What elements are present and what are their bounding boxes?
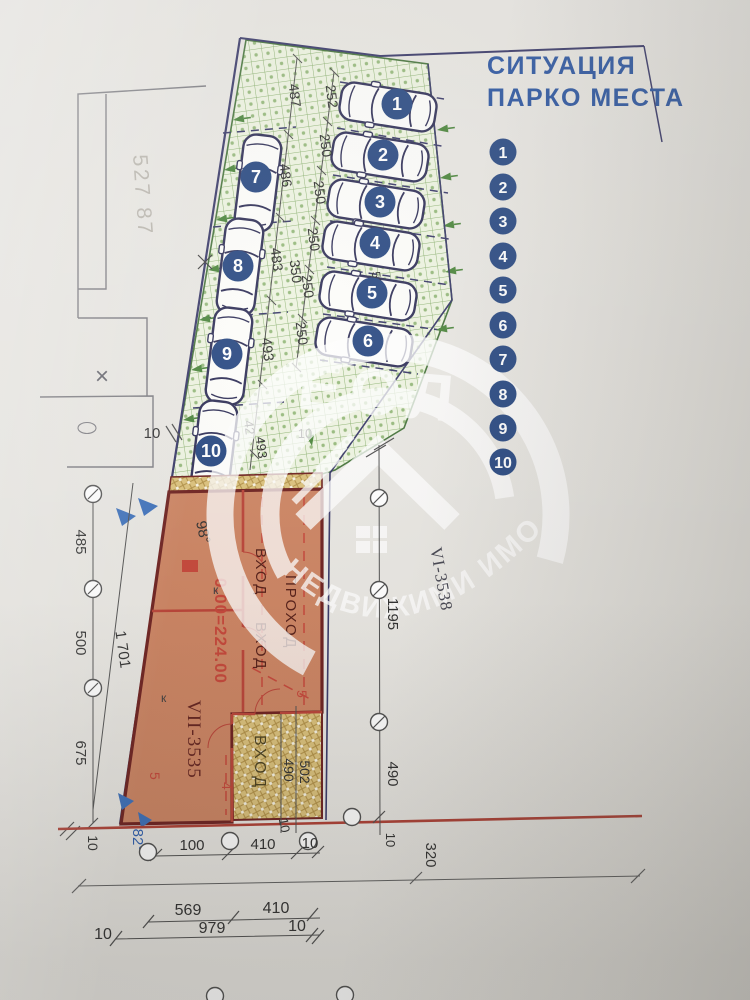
- k-upper: к: [213, 583, 219, 597]
- dim-10d: 10: [94, 926, 112, 943]
- dim-252: 252: [323, 84, 342, 109]
- dim-487: 487: [286, 83, 305, 108]
- legend-4-num: 4: [499, 249, 508, 266]
- badge-2: 2: [368, 140, 399, 171]
- badge-3: 3: [365, 187, 396, 218]
- neighbour-parcels: [40, 86, 206, 467]
- plot-number-main: VII-3535: [183, 700, 204, 779]
- legend-5-num: 5: [499, 283, 508, 300]
- legend-9-num: 9: [499, 421, 508, 438]
- site-plan-drawing: × 527 87: [0, 0, 750, 1000]
- dim-10b: 10: [276, 817, 293, 834]
- badge-10: 10: [196, 436, 227, 467]
- dim-410a: 410: [250, 836, 275, 853]
- legend-item-7: 7: [490, 346, 517, 373]
- legend-item-4: 4: [490, 243, 517, 270]
- legend-3-num: 3: [499, 214, 508, 231]
- setback-right-label: 5: [294, 690, 310, 698]
- survey-bowtie-mark: [182, 560, 198, 572]
- dim-1701: 1 701: [111, 630, 133, 670]
- badge-4-num: 4: [370, 233, 380, 253]
- page-title-line2: ПАРКО МЕСТА: [487, 84, 685, 112]
- badge-1: 1: [382, 89, 413, 120]
- legend-10-num: 10: [494, 455, 512, 472]
- badge-5: 5: [357, 278, 388, 309]
- dim-10e: 10: [288, 918, 306, 935]
- dim-320: 320: [422, 842, 439, 867]
- dim-490b: 490: [281, 758, 297, 782]
- dim-569: 569: [175, 902, 202, 919]
- badge-3-num: 3: [375, 192, 385, 212]
- dim-500: 500: [72, 630, 89, 655]
- badge-5-num: 5: [367, 283, 377, 303]
- badge-4: 4: [360, 228, 391, 259]
- dim-250c: 250: [305, 227, 324, 252]
- legend-item-9: 9: [490, 415, 517, 442]
- dim-250d: 250: [299, 274, 318, 299]
- setback-left-label: 5: [147, 772, 163, 780]
- legend-item-5: 5: [490, 277, 517, 304]
- entrance-upper-label: ВХОД: [252, 548, 269, 596]
- legend-1-num: 1: [499, 145, 508, 162]
- dim-10a: 10: [302, 835, 319, 852]
- badge-6: 6: [353, 326, 384, 357]
- legend-item-8: 8: [490, 381, 517, 408]
- badge-9-num: 9: [222, 344, 232, 364]
- badge-7: 7: [241, 162, 272, 193]
- dim-10c: 10: [383, 833, 398, 847]
- badge-2-num: 2: [378, 145, 388, 165]
- survey-ellipse-mark: [78, 423, 96, 434]
- dim-490a: 490: [384, 761, 401, 786]
- badge-1-num: 1: [392, 94, 402, 114]
- page-title-line1: СИТУАЦИЯ: [487, 52, 636, 80]
- badge-6-num: 6: [363, 331, 373, 351]
- dim-100: 100: [179, 837, 204, 854]
- legend-list: 1 2 3 4 5 6 7 8 9 10: [490, 139, 517, 476]
- dim-410b: 410: [263, 900, 290, 917]
- legend-6-num: 6: [499, 318, 508, 335]
- site-plan-photo: × 527 87: [0, 0, 750, 1000]
- badge-7-num: 7: [251, 167, 261, 187]
- dim-250b: 250: [311, 180, 330, 205]
- entrance-outdoor-label: ВХОД: [251, 735, 268, 790]
- legend-item-3: 3: [490, 208, 517, 235]
- dim-250a: 250: [317, 133, 336, 158]
- legend-item-2: 2: [490, 174, 517, 201]
- dim-502: 502: [297, 760, 313, 784]
- legend-item-10: 10: [490, 449, 517, 476]
- dim-1195: 1195: [384, 598, 401, 630]
- dim-10-bottomleft: 10: [85, 835, 101, 851]
- k-lower: к: [161, 691, 167, 705]
- watermark-logo-letters: ЕОЛ: [295, 348, 465, 436]
- dim-250e: 250: [293, 321, 312, 346]
- dim-483: 483: [268, 247, 287, 272]
- survey-ref-faint: 527 87: [128, 154, 157, 238]
- dim-979: 979: [199, 920, 226, 937]
- dim-493b: 493: [253, 436, 271, 459]
- legend-7-num: 7: [499, 352, 508, 369]
- legend-2-num: 2: [499, 180, 508, 197]
- legend-8-num: 8: [499, 387, 508, 404]
- dim-675: 675: [72, 740, 89, 765]
- house-window-icon: [356, 526, 387, 553]
- badge-10-num: 10: [201, 441, 221, 461]
- badge-8: 8: [223, 251, 254, 282]
- dim-493a: 493: [259, 337, 278, 362]
- neighbour-x-mark: ×: [95, 363, 109, 390]
- badge-9: 9: [212, 339, 243, 370]
- dim-10-left: 10: [144, 425, 161, 442]
- setback-bottom-label: 4: [219, 782, 235, 790]
- legend-item-1: 1: [490, 139, 517, 166]
- dim-486: 486: [277, 163, 296, 188]
- badge-8-num: 8: [233, 256, 243, 276]
- legend-item-6: 6: [490, 312, 517, 339]
- dim-485: 485: [72, 529, 89, 554]
